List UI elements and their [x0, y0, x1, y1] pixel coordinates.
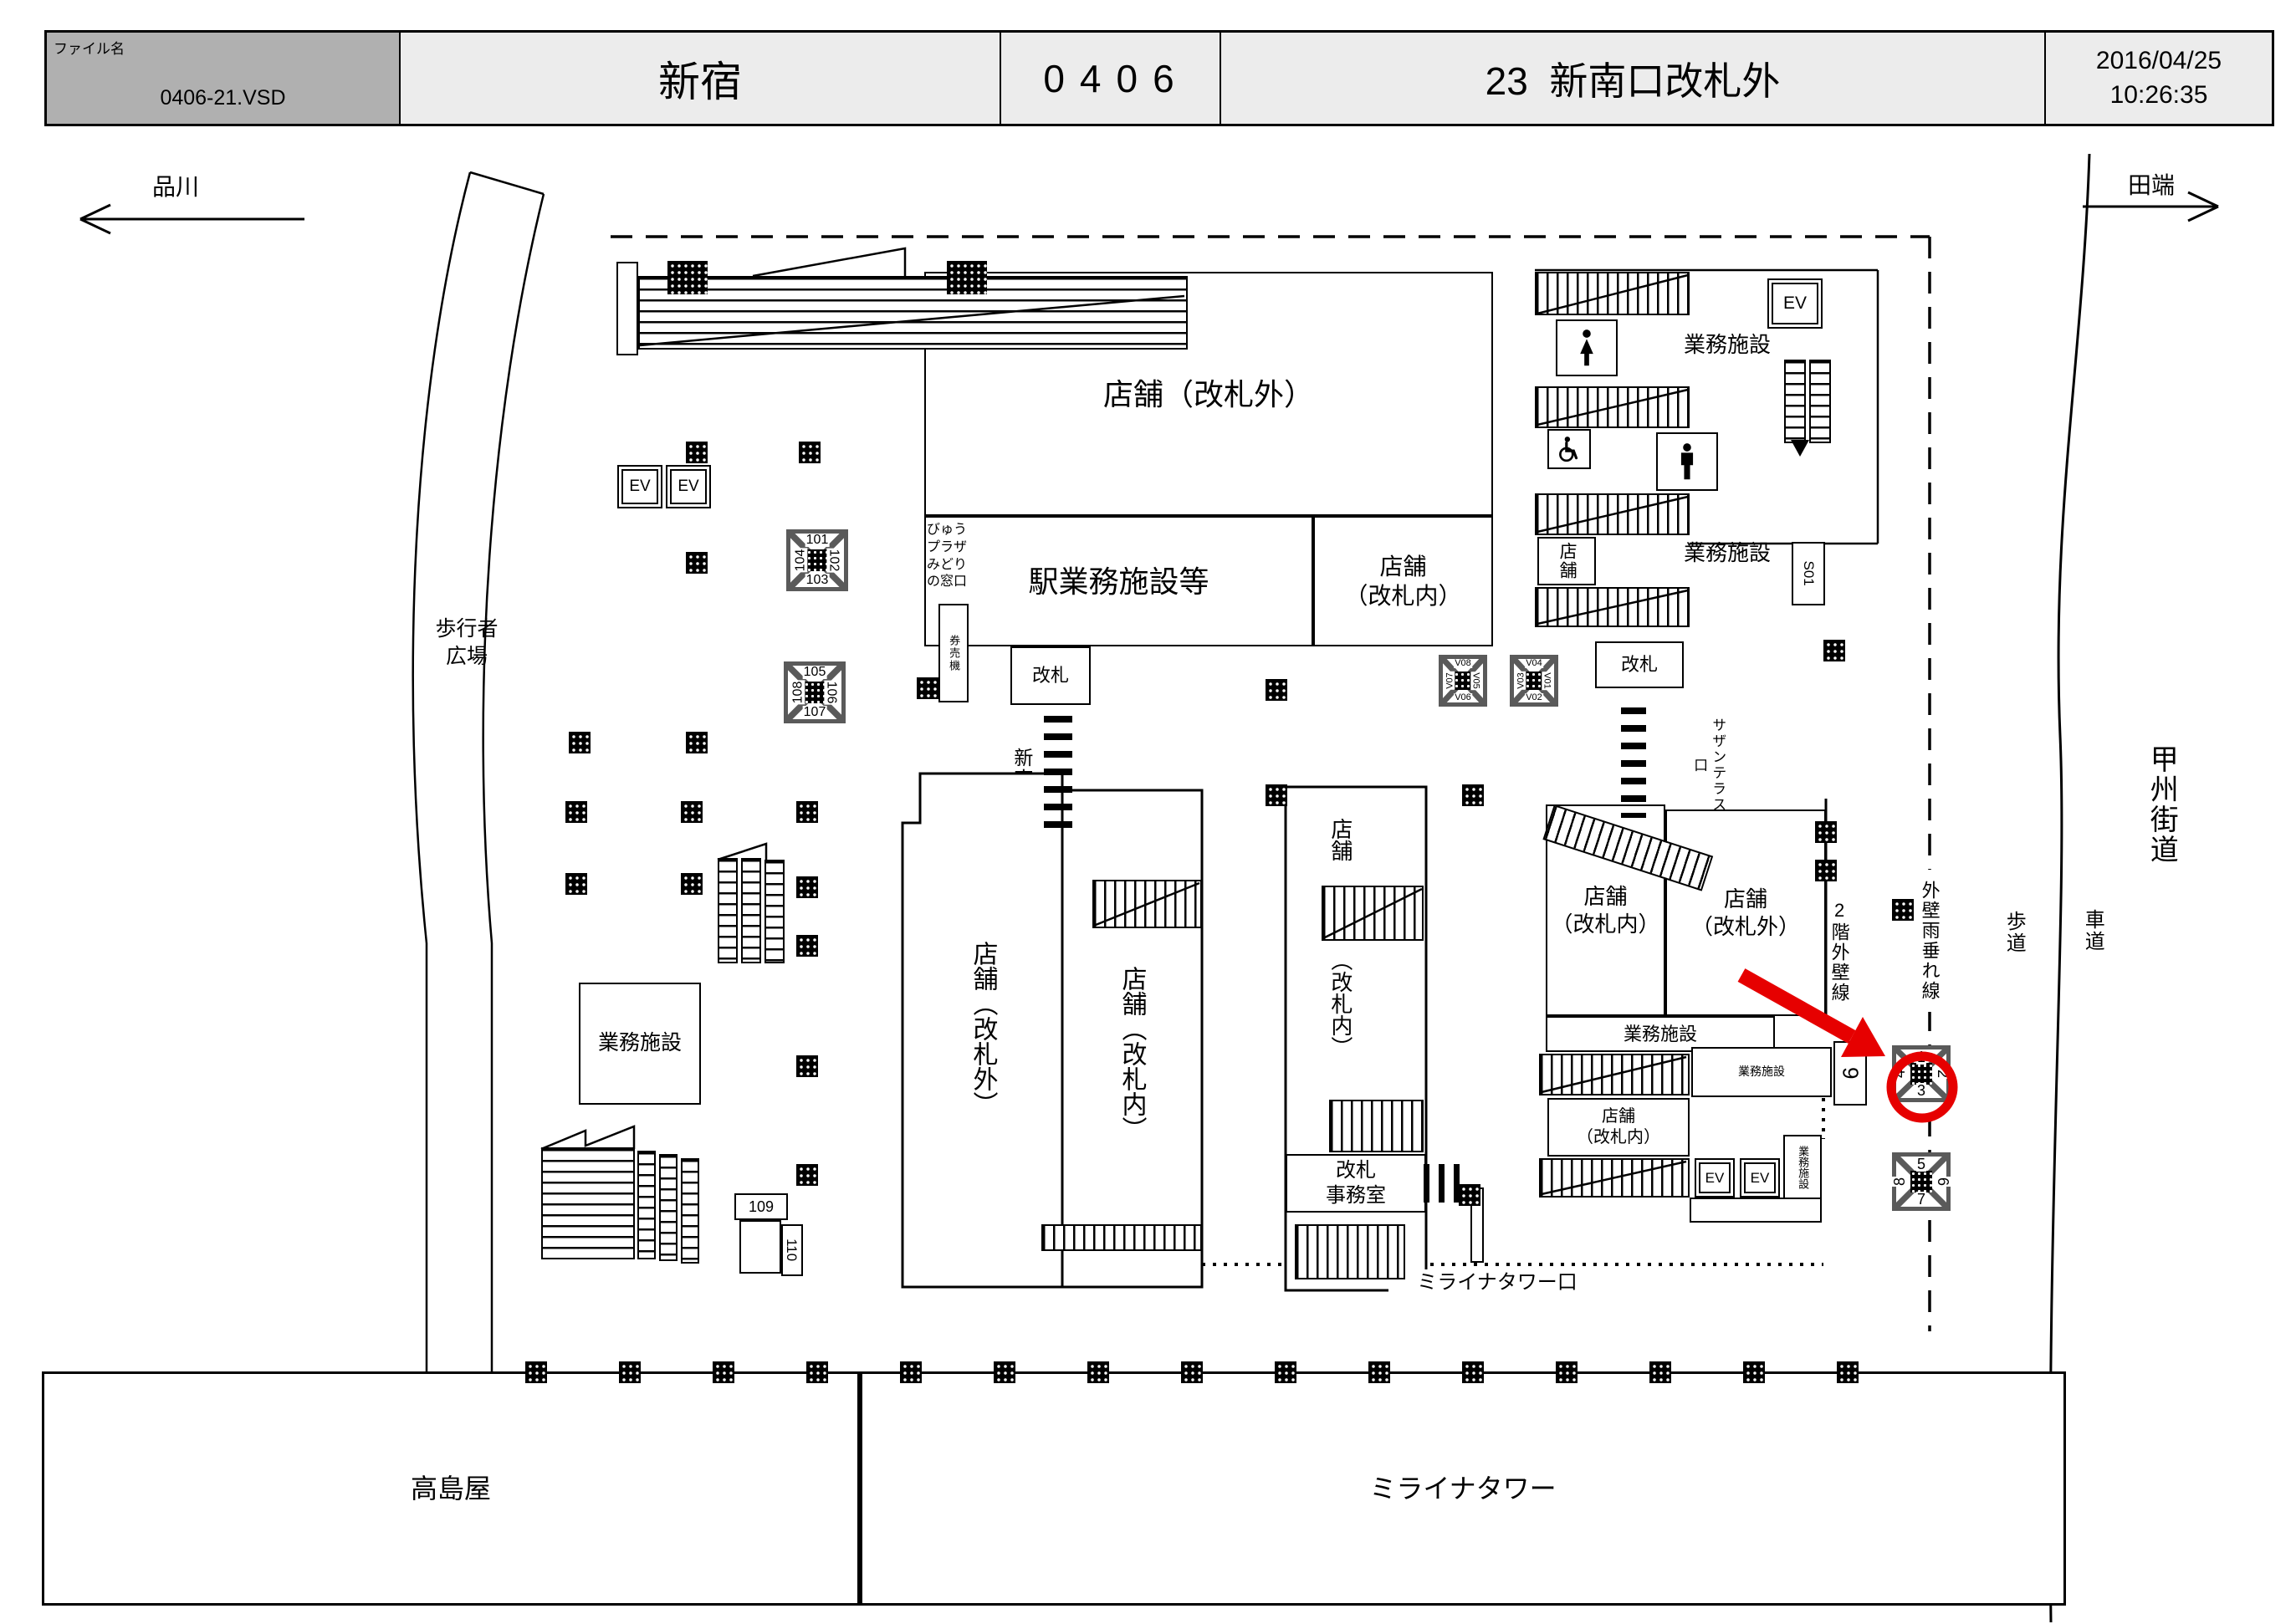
- column-pillar: [1823, 640, 1845, 661]
- ev-label: EV: [629, 477, 650, 496]
- stairs: [681, 1158, 699, 1264]
- ad-number: S01: [1799, 561, 1817, 586]
- column-pillar: [917, 677, 938, 699]
- ad-number: 106: [825, 681, 838, 705]
- room-shop-small: 店舗: [1537, 537, 1596, 585]
- column-pillar: [1266, 784, 1287, 806]
- column-pillar: [1815, 860, 1837, 881]
- ad-number: V07: [1445, 672, 1455, 690]
- stairs: [741, 858, 761, 963]
- new-south-exit-label: 新南口: [1009, 726, 1034, 831]
- building-label: ミライナタワー: [1369, 1472, 1556, 1505]
- column-pillar: [796, 1164, 818, 1186]
- room-label-inside-gate: （改札内）: [1315, 949, 1365, 1058]
- column-pillar: [1266, 679, 1287, 701]
- ticket-machine-box: 券売機: [938, 604, 969, 702]
- ad-number: V03: [1516, 672, 1526, 690]
- room-label: 店舗 （改札外）: [1691, 886, 1800, 940]
- ad-number: 3: [1916, 1083, 1926, 1098]
- spot-9-box: 9: [1833, 1041, 1867, 1106]
- arrow-shinagawa: [80, 205, 304, 233]
- room-office-vertical: 業務施設: [1783, 1135, 1822, 1199]
- gate-box-new-south: 改札: [1010, 646, 1091, 705]
- room-label-shop: 店舗: [1315, 809, 1365, 870]
- spot-s01-box: S01: [1792, 542, 1825, 605]
- column-pillar: [900, 1361, 922, 1383]
- unit-109-room: [739, 1220, 781, 1274]
- column-pillar: [667, 261, 708, 294]
- title-block: ファイル名 0406-21.VSD 新宿 0406 23 新南口改札外 2016…: [44, 30, 2274, 126]
- escalator-end-cap: [616, 262, 638, 355]
- datetime-cell: 2016/04/25 10:26:35: [2046, 33, 2272, 124]
- ad-number: 1: [1916, 1049, 1926, 1065]
- pillar-105-108: 105 106 107 108: [784, 661, 846, 723]
- station-code-cell: 0406: [1001, 33, 1221, 124]
- road-roadway: 車道: [2079, 901, 2105, 960]
- ev-label: EV: [1705, 1170, 1725, 1187]
- column-pillar: [1275, 1361, 1296, 1383]
- ticket-gates: [1044, 716, 1072, 831]
- ad-number: V05: [1471, 672, 1480, 690]
- ad-number: 8: [1892, 1177, 1907, 1187]
- column-core: [806, 549, 828, 571]
- ad-number: 7: [1916, 1192, 1926, 1207]
- column-pillar: [1815, 821, 1837, 843]
- station-name: 新宿: [658, 49, 742, 109]
- direction-tabata: 田端: [2101, 171, 2201, 201]
- file-name-value: 0406-21.VSD: [47, 86, 399, 110]
- column-pillar: [1368, 1361, 1390, 1383]
- building-miraina-tower: ミライナタワー: [860, 1371, 2066, 1606]
- ad-number: 6: [1935, 1177, 1951, 1187]
- ad-number: 107: [803, 706, 827, 719]
- room-label: 店舗: [1556, 542, 1578, 580]
- stairs: [1535, 493, 1690, 535]
- column-pillar: [1556, 1361, 1578, 1383]
- column-pillar: [1087, 1361, 1109, 1383]
- ticket-machine-label: 券売機: [947, 635, 960, 672]
- room-office-square: 業務施設: [579, 983, 701, 1105]
- room-shop-inside-r2: 店舗 （改札内）: [1547, 1098, 1690, 1157]
- column-pillar: [1462, 784, 1484, 806]
- view-plaza-label: びゅう プラザ みどり の窓口: [927, 522, 994, 591]
- line-2f-wall-label: 2階外壁線: [1827, 888, 1851, 1014]
- base-strip: [1690, 1198, 1822, 1223]
- column-pillar: [713, 1361, 734, 1383]
- line-rain-drip-label: 外壁雨垂れ線: [1917, 870, 1941, 1012]
- column-pillar: [799, 442, 821, 463]
- column-pillar: [1743, 1361, 1765, 1383]
- station-code: 0406: [1043, 56, 1189, 101]
- womens-toilet-icon: [1572, 326, 1601, 370]
- column-pillar: [796, 876, 818, 898]
- print-date: 2016/04/25: [2096, 44, 2222, 79]
- building-takashimaya: 高島屋: [42, 1371, 860, 1606]
- unit-110-box: 110: [781, 1224, 803, 1276]
- room-label: 店舗 （改札内）: [1344, 552, 1461, 610]
- southern-terrace-exit-label: サザンテラス口: [1690, 711, 1726, 820]
- room-shop-outside-r: 店舗 （改札外）: [1665, 809, 1826, 1016]
- gate-label: 改札: [1032, 664, 1069, 687]
- unit-label: 110: [783, 1238, 800, 1261]
- stairs: [1322, 886, 1424, 941]
- column-pillar: [1649, 1361, 1671, 1383]
- room-label: 店舗 （改札内）: [1577, 1106, 1660, 1148]
- ad-number: 4: [1892, 1069, 1907, 1079]
- column-pillar: [681, 873, 703, 895]
- ad-number: 105: [803, 666, 827, 679]
- pillar-v05-v08: V08 V05 V06 V07: [1439, 655, 1487, 707]
- room-label-shop-outside-tall: 店舗（改札外）: [954, 828, 1012, 1229]
- office-facility-label: 業務施設: [1652, 331, 1803, 360]
- ticket-gates: [1621, 707, 1646, 818]
- stairs: [1539, 1054, 1690, 1095]
- stairs: [764, 860, 785, 963]
- stairs: [718, 858, 738, 963]
- elevator-box: EV: [1695, 1158, 1735, 1198]
- ad-number: 9: [1837, 1067, 1864, 1079]
- ad-number: V01: [1542, 672, 1552, 690]
- stairs: [1092, 880, 1202, 928]
- elevator-box: EV: [1767, 278, 1823, 329]
- ad-number: 2: [1935, 1069, 1951, 1079]
- mens-toilet-icon: [1673, 439, 1701, 484]
- column-pillar: [994, 1361, 1015, 1383]
- miraina-tower-exit-label: ミライナタワー口: [1388, 1269, 1606, 1295]
- room-label: 店舗（改札外）: [1103, 375, 1314, 413]
- room-label: 業務施設: [1796, 1146, 1809, 1189]
- stairs: [1809, 360, 1831, 443]
- column-core: [804, 682, 826, 703]
- ev-label: EV: [1783, 294, 1807, 314]
- column-pillar: [1837, 1361, 1859, 1383]
- room-label: 店舗 （改札内）: [1551, 883, 1659, 937]
- room-label: 業務施設: [1738, 1065, 1785, 1080]
- room-label: 業務施設: [598, 1030, 682, 1056]
- ad-number: 101: [805, 534, 830, 547]
- ad-number: V02: [1525, 693, 1543, 702]
- column-pillar: [806, 1361, 828, 1383]
- road-koshu-kaido: 甲州街道: [2143, 729, 2180, 880]
- mens-toilet-box: [1656, 432, 1718, 491]
- column-pillar: [569, 732, 591, 753]
- column-pillar: [1462, 1361, 1484, 1383]
- pedestrian-plaza-label: 歩行者 広場: [417, 615, 517, 670]
- room-label: 駅業務施設等: [1028, 563, 1209, 600]
- pillar-101-104: 101 102 103 104: [786, 529, 848, 591]
- stairs: [1539, 1158, 1690, 1198]
- room-gate-office: 改札 事務室: [1286, 1154, 1426, 1213]
- column-pillar: [686, 442, 708, 463]
- column-pillar: [565, 801, 587, 823]
- column-core: [1454, 672, 1472, 690]
- escalator-bank: [638, 276, 1188, 350]
- stairs: [1535, 386, 1690, 428]
- gate-box-right: 改札: [1595, 641, 1684, 688]
- ad-number: 5: [1916, 1157, 1926, 1172]
- road-sidewalk: 歩道: [2001, 903, 2027, 962]
- column-pillar: [796, 801, 818, 823]
- ad-number: 108: [791, 681, 805, 705]
- column-pillar: [686, 552, 708, 574]
- ad-number: V08: [1454, 659, 1472, 668]
- column-pillar: [565, 873, 587, 895]
- column-core: [1525, 672, 1543, 690]
- office-facility-label: 業務施設: [1652, 539, 1803, 568]
- room-label: 業務施設: [1624, 1023, 1697, 1046]
- sheet-title: 23 新南口改札外: [1485, 51, 1781, 106]
- stairs: [1329, 1100, 1424, 1152]
- stairs: [1041, 1224, 1202, 1251]
- column-pillar: [947, 261, 987, 294]
- stairs: [541, 1147, 635, 1259]
- file-name-label: ファイル名: [54, 37, 125, 58]
- elevator-box: EV: [1740, 1158, 1780, 1198]
- column-core: [1910, 1171, 1932, 1192]
- column-pillar: [1459, 1184, 1480, 1206]
- room-label: 改札 事務室: [1326, 1158, 1386, 1208]
- wheelchair-access-box: [1547, 429, 1591, 469]
- column-pillar: [681, 801, 703, 823]
- stairs: [1784, 360, 1806, 443]
- building-label: 高島屋: [411, 1472, 491, 1505]
- womens-toilet-box: [1556, 319, 1618, 376]
- column-pillar: [1181, 1361, 1203, 1383]
- room-shop-inside-gate: 店舗 （改札内）: [1313, 516, 1493, 646]
- room-office-strip-small: 業務施設: [1691, 1047, 1832, 1097]
- column-pillar: [686, 732, 708, 753]
- stairs: [1295, 1224, 1405, 1279]
- column-pillar: [619, 1361, 641, 1383]
- ev-label: EV: [1751, 1170, 1770, 1187]
- stairs: [1535, 272, 1690, 315]
- direction-shinagawa: 品川: [125, 172, 226, 202]
- ticket-gates: [1424, 1164, 1460, 1203]
- stairs: [659, 1154, 678, 1261]
- print-time: 10:26:35: [2110, 79, 2208, 113]
- elevator-box: EV: [666, 465, 711, 508]
- ad-number: 102: [827, 549, 841, 573]
- gate-label: 改札: [1621, 653, 1658, 677]
- elevator-box: EV: [617, 465, 662, 508]
- ad-number: 103: [805, 574, 830, 587]
- unit-label: 109: [749, 1198, 774, 1217]
- unit-109-box: 109: [734, 1193, 788, 1220]
- sheet-title-cell: 23 新南口改札外: [1221, 33, 2046, 124]
- column-pillar: [525, 1361, 547, 1383]
- ad-number: 104: [794, 549, 807, 573]
- pillar-spot-1-4: 1 2 3 4: [1892, 1045, 1951, 1102]
- pillar-spot-5-8: 5 6 7 8: [1892, 1152, 1951, 1211]
- stairs: [1535, 587, 1690, 627]
- file-name-cell: ファイル名 0406-21.VSD: [47, 33, 401, 124]
- ad-number: V04: [1525, 659, 1543, 668]
- station-name-cell: 新宿: [401, 33, 1001, 124]
- column-pillar: [796, 1055, 818, 1077]
- column-pillar: [796, 935, 818, 957]
- pillar-v01-v04: V04 V01 V02 V03: [1510, 655, 1558, 707]
- ev-label: EV: [678, 477, 698, 496]
- column-pillar: [1892, 899, 1914, 921]
- stairs: [637, 1151, 656, 1259]
- wheelchair-icon: [1555, 435, 1583, 463]
- floor-plan: ファイル名 0406-21.VSD 新宿 0406 23 新南口改札外 2016…: [0, 0, 2296, 1624]
- ad-number: V06: [1454, 693, 1472, 702]
